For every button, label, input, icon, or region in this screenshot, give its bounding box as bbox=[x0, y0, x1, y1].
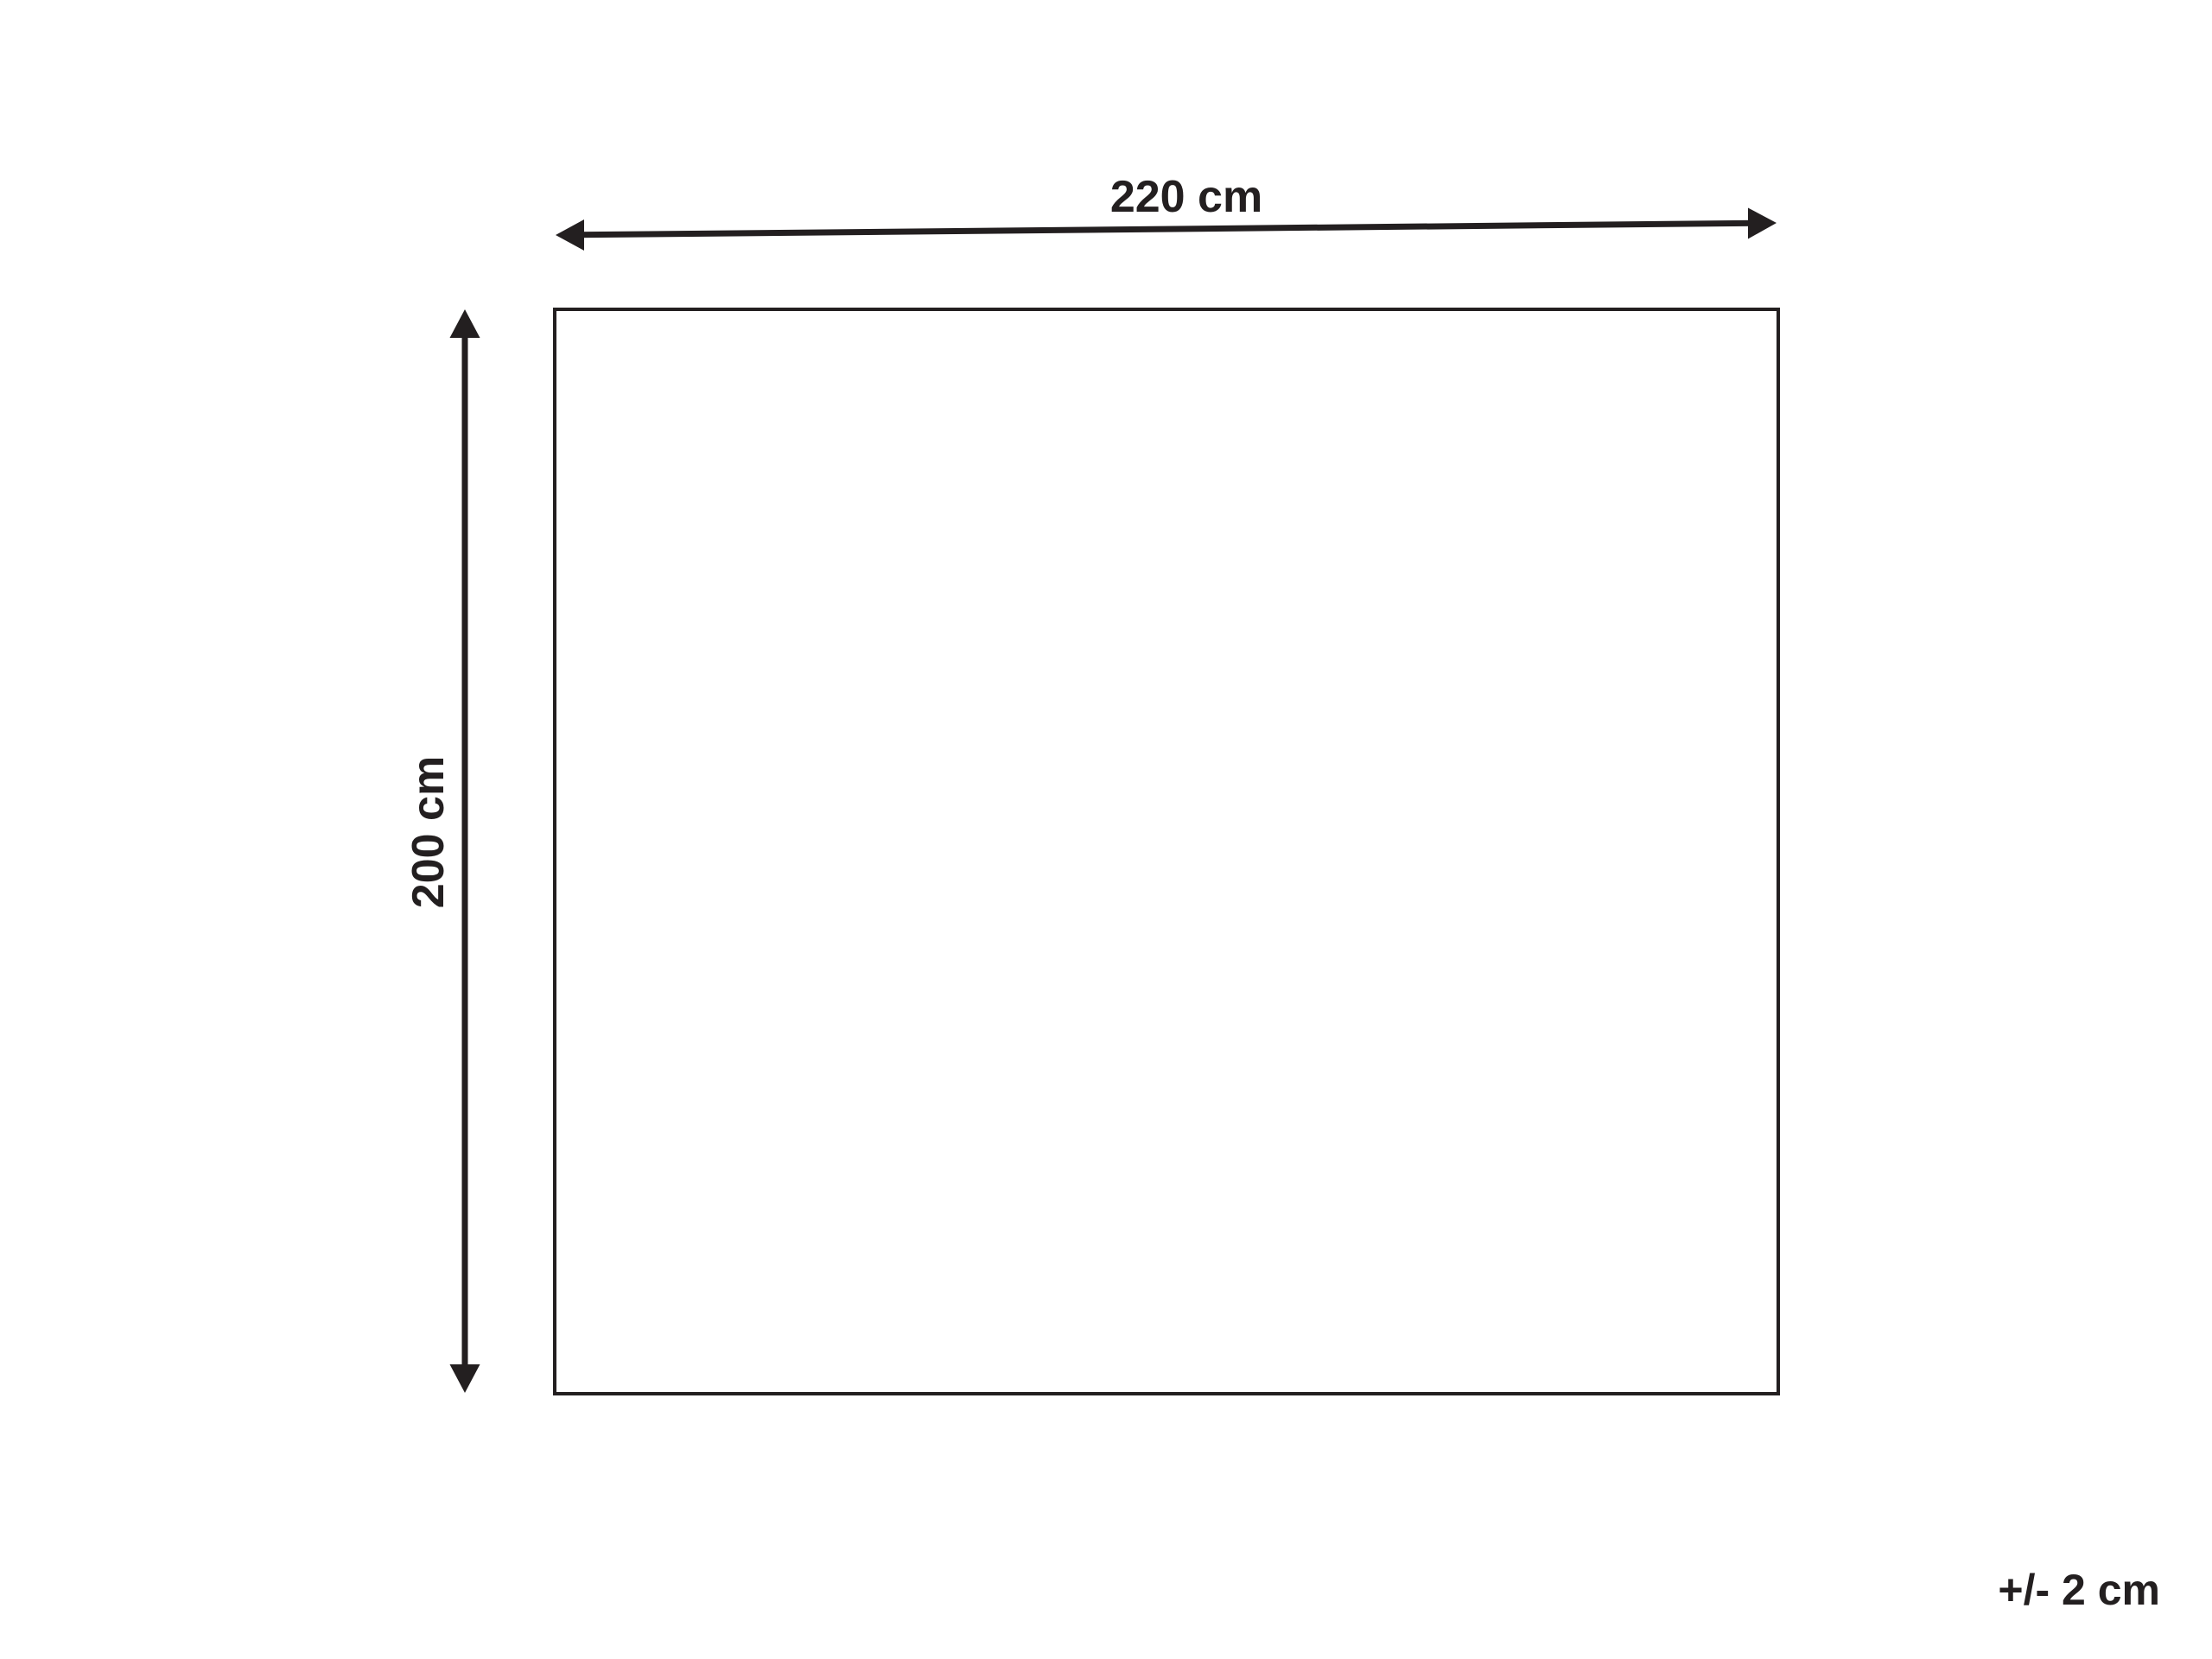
width-arrow-right-head-icon bbox=[1748, 208, 1777, 239]
height-dimension-arrow bbox=[450, 309, 480, 1393]
dimension-diagram-page: 220 cm 200 cm +/- 2 cm bbox=[0, 0, 2212, 1659]
width-arrow-left-head-icon bbox=[556, 219, 584, 251]
height-arrow-bottom-head-icon bbox=[450, 1364, 480, 1393]
height-arrow-top-head-icon bbox=[450, 309, 480, 338]
height-dimension-label: 200 cm bbox=[404, 756, 454, 908]
width-arrow-shaft bbox=[577, 223, 1755, 235]
tolerance-label: +/- 2 cm bbox=[1998, 1566, 2160, 1614]
dimension-diagram-canvas: 220 cm 200 cm +/- 2 cm bbox=[0, 0, 2212, 1659]
product-outline-rectangle bbox=[555, 309, 1778, 1394]
width-dimension-label: 220 cm bbox=[1110, 172, 1262, 222]
